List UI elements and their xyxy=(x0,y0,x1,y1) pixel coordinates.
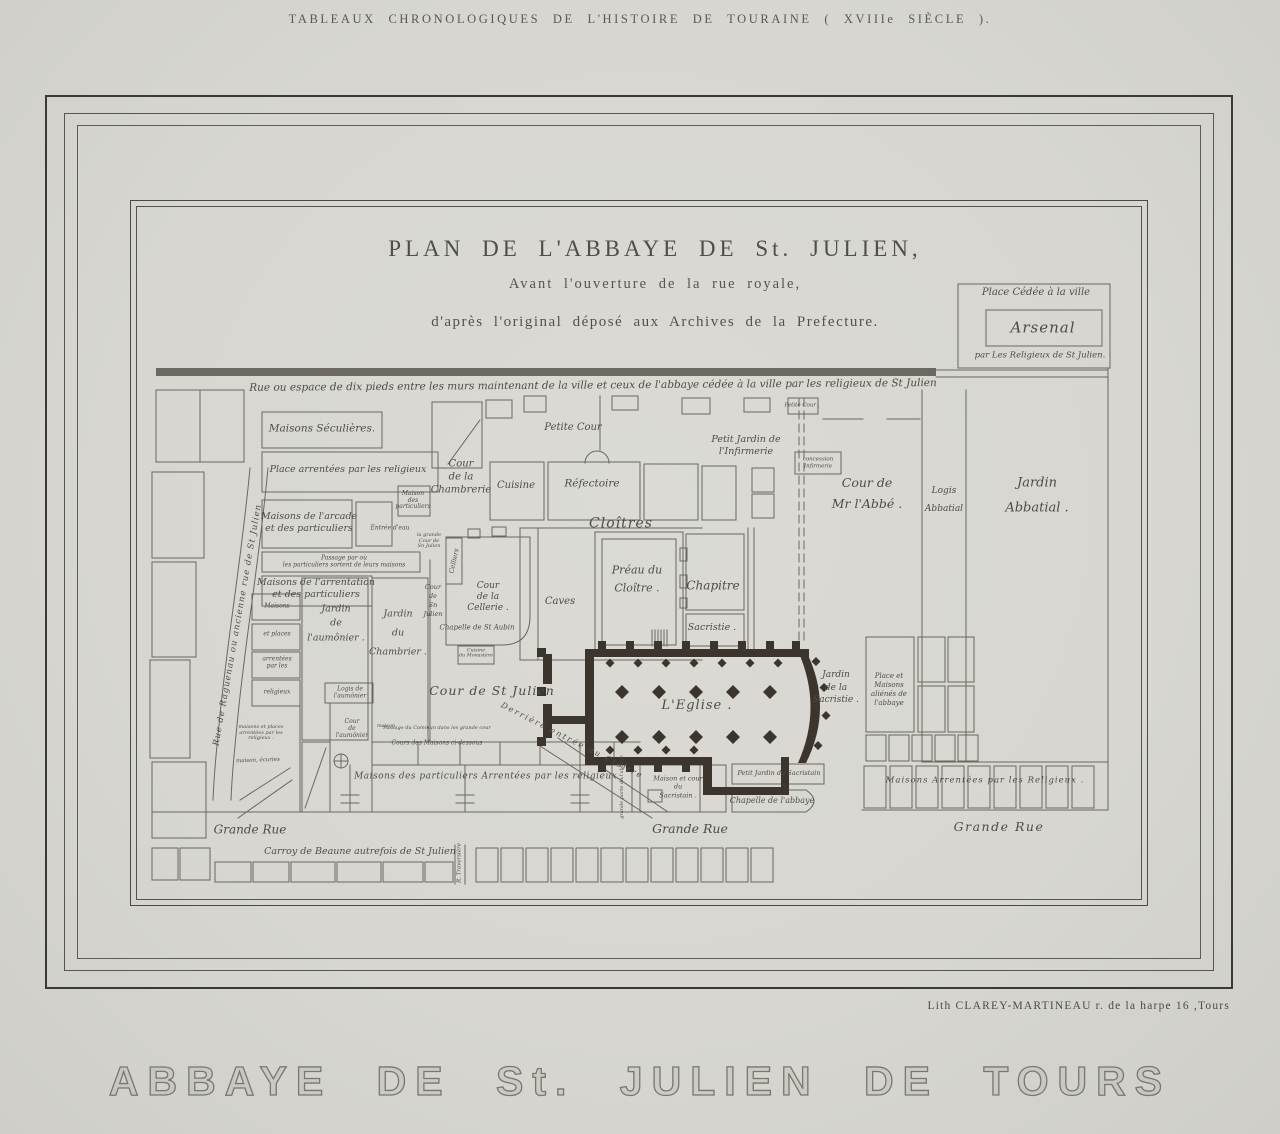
place-arrentees-label: Place arrentées par les religieux xyxy=(258,464,438,476)
rue-raguenau-label: Rue de Raguenau ou ancienne rue de St Ju… xyxy=(211,503,264,746)
place-cedee-ville-label: Place Cédée à la ville xyxy=(982,287,1090,300)
l-eglise-label: L'Eglise . xyxy=(662,698,733,714)
jardin-chambrier-label: Jardin du Chambrier . xyxy=(369,605,427,662)
maisons-box4-label: religieux xyxy=(264,688,291,696)
paper-sheet: TABLEAUX CHRONOLOGIQUES DE L'HISTOIRE DE… xyxy=(0,0,1280,1134)
petit-jardin-infirmerie-label: Petit Jardin de l'Infirmerie xyxy=(711,434,780,458)
grande-rue-left-label: Grande Rue xyxy=(214,823,287,838)
maison-tiny-label: maison xyxy=(377,723,395,729)
concession-infirmerie-label: concession Infirmerie xyxy=(803,456,834,469)
maison-ecuries-label: maison, écuries xyxy=(236,757,280,765)
par-les-religieux-label: par Les Religieux de St Julien. xyxy=(975,351,1106,362)
maisons-particuliers-arrentees-label: Maisons des particuliers Arrentées par l… xyxy=(354,771,624,782)
maison-des-particuliers-label: Maison des particuliers xyxy=(395,491,430,511)
jardin-aumonier-label: Jardin de l'aumônier . xyxy=(307,603,365,646)
derriere-entree-cloitre-label: Derrière entrée du Cloître xyxy=(499,701,645,782)
sacristie-label: Sacristie . xyxy=(688,622,736,634)
maisons-box2-label: et places xyxy=(263,630,290,638)
plan-labels-layer: Rue ou espace de dix pieds entre les mur… xyxy=(0,0,1280,1134)
grande-porte-abbaye-label: grande porte de l'abbaye xyxy=(619,755,625,819)
passage-grande-cour-label: Passage du Commun dans les grande cour xyxy=(383,725,491,731)
maisons-box1-label: Maisons xyxy=(264,602,289,610)
grande-cour-tiny-label: la grande Cour de Sn Julien xyxy=(417,533,441,550)
caves-label: Caves xyxy=(545,596,575,609)
petite-cour-right-label: Petite Cour . xyxy=(784,403,819,410)
refectoire-label: Réfectoire xyxy=(564,477,619,490)
cuisine-label: Cuisine xyxy=(497,480,535,493)
maisons-arcade-label: Maisons de l'arcade et des particuliers xyxy=(261,511,357,535)
place-maisons-alienes-label: Place et Maisons aliénés de l'abbaye xyxy=(871,672,907,708)
chapelle-st-aubin-label: Chapelle de St Aubin xyxy=(440,624,515,633)
plate-outline-title: ABBAYE DE St. JULIEN DE TOURS xyxy=(0,1058,1280,1105)
petite-cour-center-label: Petite Cour xyxy=(544,422,601,435)
maisons-arrentation-label: Maisons de l'arrentation et des particul… xyxy=(257,577,375,601)
cour-sn-julien-vertical-label: Cour de Sn Julien xyxy=(424,583,443,619)
jardin-abbatial-label: Jardin Abbatial . xyxy=(1005,471,1068,520)
jardin-sacristie-label: Jardin de la Sacristie . xyxy=(813,669,859,707)
logis-aumonier-label: Logis de l'aumônier xyxy=(334,686,367,699)
preau-cloitre-label: Préau du Cloître . xyxy=(612,561,662,596)
cour-st-julien-label: Cour de St Julien xyxy=(429,683,555,699)
chapelle-abbaye-label: Chapelle de l'abbaye xyxy=(730,796,814,806)
arsenal-label: Arsenal xyxy=(1011,319,1076,338)
entree-eau-label: Entrée d'eau xyxy=(370,524,409,532)
logis-abbatial-label: Logis Abbatial xyxy=(925,482,963,518)
chapitre-label: Chapitre xyxy=(686,579,739,594)
celliers-label: Celliers xyxy=(447,548,460,574)
cour-chambrerie-label: Cour de la Chambrerie xyxy=(431,458,492,497)
grande-rue-center-label: Grande Rue xyxy=(652,821,728,837)
cloitres-label: Cloîtres xyxy=(589,515,653,533)
maisons-places-tiny-label: maisons et places arrentées par les reli… xyxy=(239,725,284,742)
passage-particuliers-label: Passage par où les particuliers sortent … xyxy=(283,555,406,568)
maison-cour-sacristain-label: Maison et cour du Sacristain . xyxy=(653,774,702,799)
cour-mr-abbe-label: Cour de Mr l'Abbé . xyxy=(832,472,903,515)
carroy-de-beaune-label: Carroy de Beaune autrefois de St Julien xyxy=(264,846,456,858)
cour-aumonier-label: Cour de l'aumônier xyxy=(336,718,369,740)
rue-espace-dix-pieds-label: Rue ou espace de dix pieds entre les mur… xyxy=(233,377,953,395)
maisons-box3-label: arrentées par les xyxy=(262,656,291,669)
cours-des-maisons-label: Cours des Maisons ci-dessous xyxy=(392,739,483,747)
maisons-arrentees-religieux-label: Maisons Arrentées par les Religieux . xyxy=(886,776,1085,787)
cour-cellerie-label: Cour de la Cellerie . xyxy=(467,581,509,613)
petit-jardin-sacristain-label: Petit Jardin du Sacristain xyxy=(737,769,820,777)
lithographer-credit: Lith CLAREY-MARTINEAU r. de la harpe 16 … xyxy=(927,1000,1230,1012)
grande-rue-right-label: Grande Rue xyxy=(954,819,1045,835)
rue-traversiere-label: R. Traversière xyxy=(457,843,464,883)
maisons-seculieres-label: Maisons Séculières. xyxy=(269,422,376,435)
cuisine-monastere-label: Cuisine du Monastère xyxy=(459,649,493,660)
